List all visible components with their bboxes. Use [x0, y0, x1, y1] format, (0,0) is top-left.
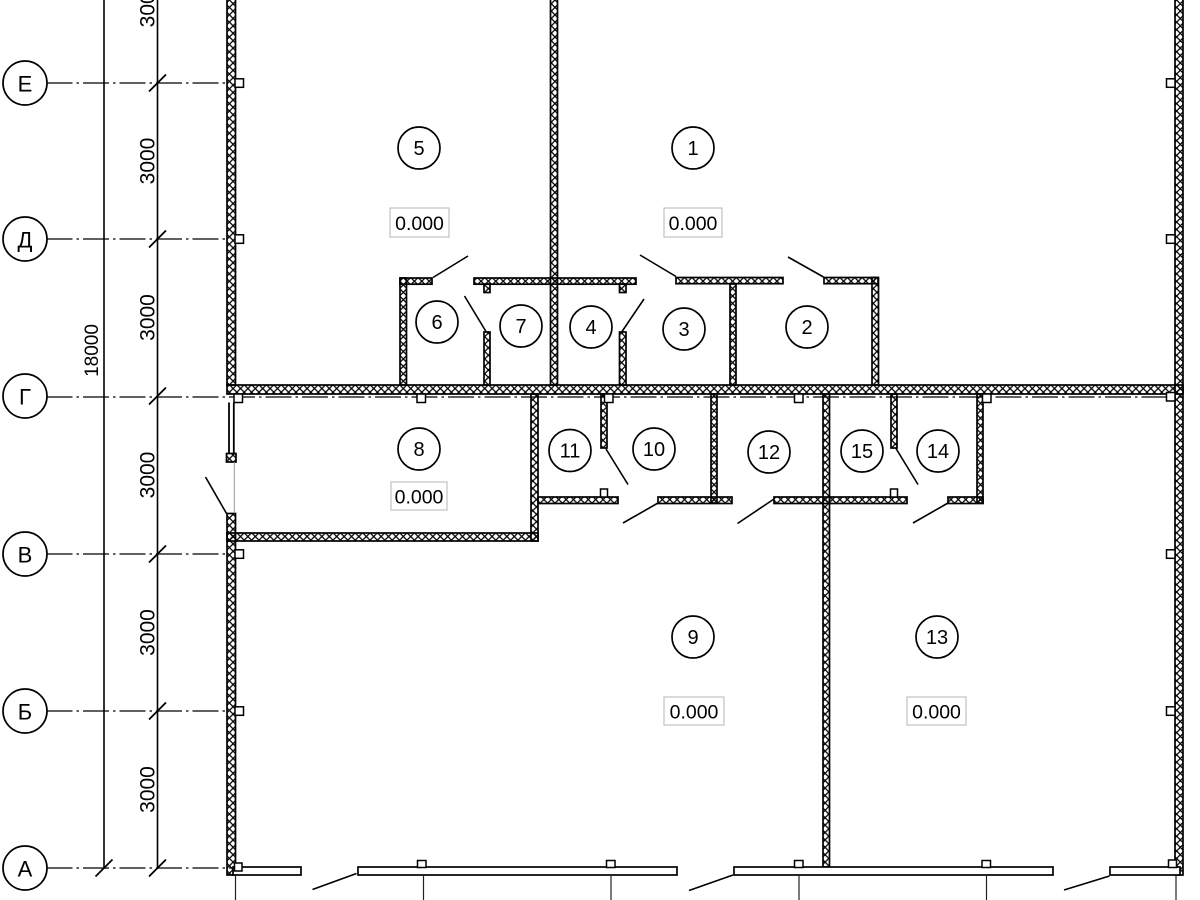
svg-text:4: 4 [585, 317, 596, 339]
svg-text:0.000: 0.000 [395, 213, 444, 235]
svg-text:15: 15 [851, 441, 873, 463]
svg-text:11: 11 [560, 441, 581, 463]
svg-text:9: 9 [687, 627, 698, 649]
svg-text:8: 8 [413, 439, 424, 461]
svg-text:3000: 3000 [137, 609, 160, 656]
svg-text:0.000: 0.000 [395, 487, 444, 509]
svg-text:6: 6 [431, 312, 442, 334]
svg-text:3000: 3000 [137, 138, 160, 185]
svg-text:0.000: 0.000 [669, 213, 718, 235]
svg-text:7: 7 [515, 316, 526, 338]
svg-text:1: 1 [687, 138, 698, 160]
svg-text:3000: 3000 [137, 766, 160, 813]
svg-text:10: 10 [643, 439, 665, 461]
svg-text:2: 2 [801, 317, 812, 339]
svg-text:Е: Е [18, 72, 33, 97]
svg-text:18000: 18000 [82, 324, 103, 377]
svg-text:А: А [18, 857, 33, 882]
svg-text:3000: 3000 [137, 0, 160, 27]
svg-text:Б: Б [18, 700, 32, 725]
svg-text:3000: 3000 [137, 294, 160, 341]
svg-text:5: 5 [413, 138, 424, 160]
svg-text:3: 3 [678, 319, 689, 341]
svg-text:В: В [18, 543, 33, 568]
svg-text:12: 12 [758, 442, 780, 464]
svg-text:3000: 3000 [137, 452, 160, 499]
svg-text:Г: Г [19, 385, 31, 410]
svg-text:0.000: 0.000 [670, 702, 719, 724]
svg-text:0.000: 0.000 [912, 702, 961, 724]
svg-text:13: 13 [926, 627, 948, 649]
svg-text:Д: Д [18, 228, 33, 253]
svg-text:14: 14 [927, 441, 949, 463]
